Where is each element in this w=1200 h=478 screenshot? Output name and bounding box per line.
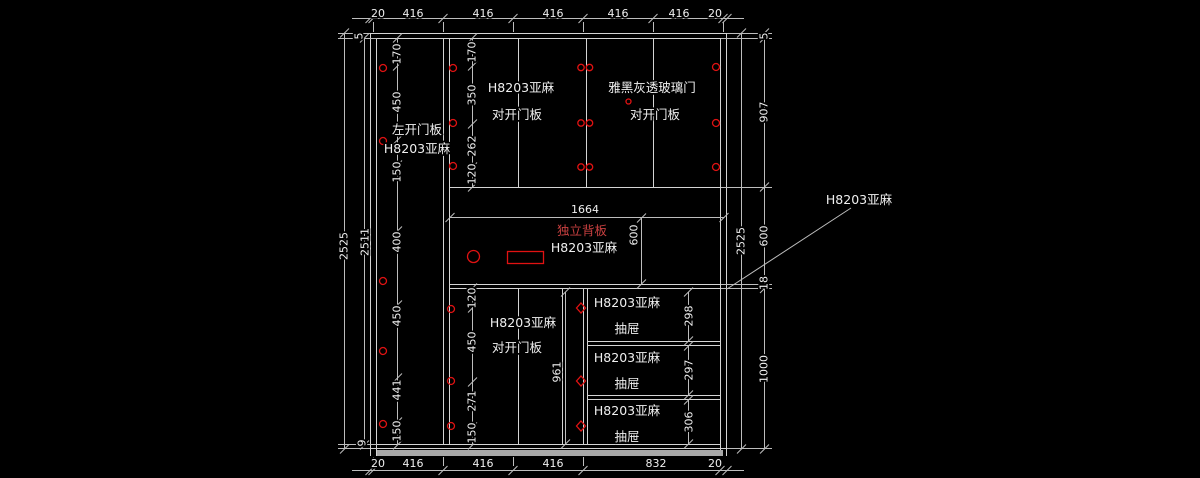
- hinge-diamonds-drawer-edge: [577, 303, 586, 431]
- dim-lower-150: 150: [466, 423, 479, 444]
- upper-middle-door-label: 对开门板: [492, 107, 543, 122]
- dim-right-5: 5: [758, 33, 771, 40]
- dim-top-416-5: 416: [669, 7, 690, 20]
- dim-chain-150a: 150: [391, 162, 404, 183]
- dim-drawer-1: 298: [683, 306, 696, 327]
- dim-bottom-20-right: 20: [708, 457, 722, 470]
- dim-upper-262: 262: [466, 136, 479, 157]
- dim-top-20-left: 20: [371, 7, 385, 20]
- drawer-3-material: H8203亚麻: [594, 403, 661, 418]
- drawer-2-material: H8203亚麻: [594, 350, 661, 365]
- cabinet-structure: [370, 33, 727, 456]
- drawer-3-label: 抽屉: [614, 429, 639, 444]
- panel-labels: 左开门板 H8203亚麻 H8203亚麻 对开门板 雅黑灰透玻璃门 对开门板 独…: [384, 80, 893, 444]
- upper-middle-door-material: H8203亚麻: [488, 80, 555, 95]
- cad-canvas: 20 416 416 416 416 416 20 20 416 416 416…: [0, 0, 1200, 478]
- dim-chain-170: 170: [391, 44, 404, 65]
- dim-right-907: 907: [758, 102, 771, 123]
- drawer-1-material: H8203亚麻: [594, 295, 661, 310]
- cad-drawing: 20 416 416 416 416 416 20 20 416 416 416…: [0, 0, 1200, 478]
- lower-middle-door-material: H8203亚麻: [490, 315, 557, 330]
- dim-lower-door-height: 961: [551, 362, 564, 383]
- dim-lower-450: 450: [466, 332, 479, 353]
- dim-bottom-416-1: 416: [403, 457, 424, 470]
- dim-top-416-3: 416: [543, 7, 564, 20]
- glass-door-label: 雅黑灰透玻璃门: [608, 80, 696, 95]
- dim-back-height: 600: [628, 225, 641, 246]
- dim-right-600: 600: [758, 226, 771, 247]
- dim-drawer-2: 297: [683, 360, 696, 381]
- dim-left-top-gap: 5: [353, 33, 366, 40]
- glass-door-sublabel: 对开门板: [630, 107, 681, 122]
- dim-upper-120: 120: [466, 164, 479, 185]
- back-panel-red-label: 独立背板: [557, 223, 608, 238]
- dim-left-overall: 2525: [338, 232, 351, 260]
- dim-top-416-2: 416: [473, 7, 494, 20]
- dim-chain-450b: 450: [391, 306, 404, 327]
- left-door-label: 左开门板: [392, 122, 443, 137]
- drawer-2-label: 抽屉: [614, 376, 639, 391]
- hinge-circles-lower-divider: [448, 306, 455, 430]
- dim-chain-150b: 150: [391, 421, 404, 442]
- dim-lower-120: 120: [466, 288, 479, 309]
- dim-chain-400: 400: [391, 232, 404, 253]
- dim-chain-441: 441: [391, 380, 404, 401]
- back-panel-material: H8203亚麻: [551, 240, 618, 255]
- kick-strip: [377, 450, 723, 456]
- dim-right-overall: 2525: [735, 227, 748, 255]
- dim-upper-170: 170: [466, 42, 479, 63]
- left-door-material: H8203亚麻: [384, 141, 451, 156]
- hinge-circles-left-door: [380, 65, 387, 428]
- dim-right-18: 18: [758, 276, 771, 290]
- dimension-labels: 20 416 416 416 416 416 20 20 416 416 416…: [338, 7, 771, 470]
- dim-top-416-1: 416: [403, 7, 424, 20]
- lower-middle-door-label: 对开门板: [492, 340, 543, 355]
- leader-material-note: H8203亚麻: [826, 192, 893, 207]
- dim-upper-350: 350: [466, 85, 479, 106]
- dim-bottom-416-3: 416: [543, 457, 564, 470]
- hinge-circles-door-gap: [578, 64, 593, 170]
- outlet-circle-mark: [468, 251, 480, 263]
- dim-right-1000: 1000: [758, 355, 771, 383]
- hinge-circles-upper-divider: [450, 65, 457, 170]
- dim-top-20-right: 20: [708, 7, 722, 20]
- dim-top-416-4: 416: [608, 7, 629, 20]
- dim-lower-271: 271: [466, 391, 479, 412]
- dim-left-bottom-gap: 9: [356, 440, 369, 447]
- dim-chain-450a: 450: [391, 92, 404, 113]
- outlet-rect-mark: [508, 252, 544, 264]
- dim-drawer-3: 306: [683, 412, 696, 433]
- drawer-1-label: 抽屉: [614, 321, 639, 336]
- dim-bottom-832: 832: [646, 457, 667, 470]
- dim-back-width: 1664: [571, 203, 599, 216]
- dim-left-inner: 2511: [359, 228, 372, 256]
- dim-bottom-416-2: 416: [473, 457, 494, 470]
- dim-bottom-20-left: 20: [371, 457, 385, 470]
